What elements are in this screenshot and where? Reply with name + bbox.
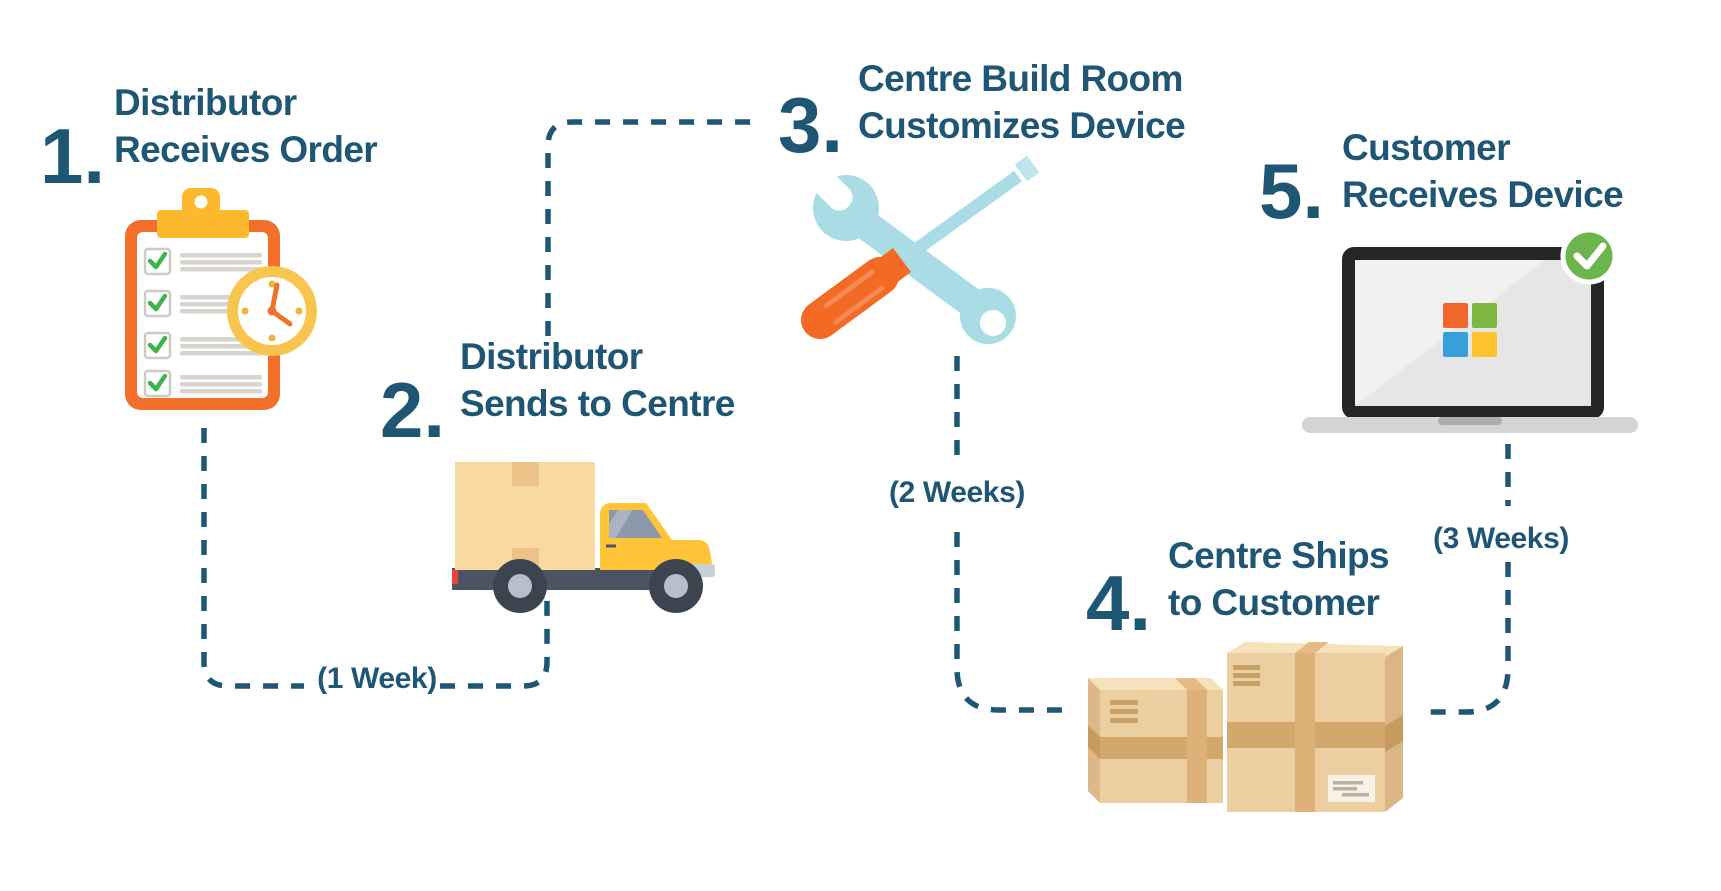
step-4-title-line1: Centre Ships (1168, 532, 1389, 579)
connector-1-2-left (204, 428, 304, 686)
connector-3-4-bottom (957, 532, 1072, 710)
step-2-number: 2. (380, 371, 445, 449)
process-infographic: 1. Distributor Receives Order (0, 0, 1721, 891)
box-left (1088, 678, 1223, 803)
step-5-number: 5. (1259, 152, 1324, 230)
connector-5-4-bottom (1424, 562, 1508, 712)
step-5-title-line2: Receives Device (1342, 171, 1623, 218)
step-3-title: Centre Build Room Customizes Device (858, 55, 1185, 149)
delivery-truck-icon (450, 420, 720, 616)
wrench-screwdriver-icon (792, 156, 1048, 352)
step-3-number: 3. (778, 86, 843, 164)
step-3-title-line2: Customizes Device (858, 102, 1185, 149)
laptop-icon (1295, 225, 1645, 450)
check-badge-icon (1563, 230, 1615, 282)
step-2-title: Distributor Sends to Centre (460, 333, 735, 427)
clock-icon (227, 266, 317, 356)
step-1-title: Distributor Receives Order (114, 79, 377, 173)
duration-label-2-weeks: (2 Weeks) (889, 478, 1025, 508)
step-5-title: Customer Receives Device (1342, 124, 1623, 218)
step-4-title-line2: to Customer (1168, 579, 1389, 626)
step-4-title: Centre Ships to Customer (1168, 532, 1389, 626)
step-2-title-line1: Distributor (460, 333, 735, 380)
step-1-title-line1: Distributor (114, 79, 377, 126)
step-1-number: 1. (40, 117, 105, 195)
clipboard-icon (118, 185, 323, 415)
step-4-number: 4. (1086, 564, 1151, 642)
shipping-boxes-icon (1080, 640, 1410, 820)
step-5-title-line1: Customer (1342, 124, 1623, 171)
box-right (1227, 642, 1403, 812)
step-3-title-line1: Centre Build Room (858, 55, 1185, 102)
connector-2-3 (548, 122, 754, 336)
duration-label-3-weeks: (3 Weeks) (1433, 524, 1569, 554)
step-1-title-line2: Receives Order (114, 126, 377, 173)
duration-label-1-week: (1 Week) (317, 664, 437, 694)
